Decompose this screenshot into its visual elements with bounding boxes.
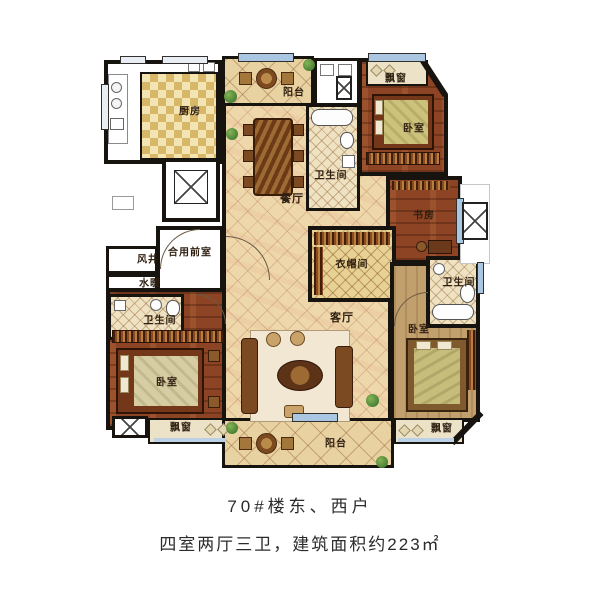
pillow (120, 377, 129, 393)
duct-shaft-icon (336, 76, 352, 100)
kitchen-sink (110, 118, 124, 130)
armchair (290, 331, 305, 346)
plant (226, 422, 238, 434)
bedroom-br-label: 卧室 (408, 325, 430, 336)
bay-window-glass (154, 438, 226, 442)
window (120, 56, 146, 64)
dining-table (253, 118, 293, 196)
bath-right-label: 卫生间 (443, 278, 476, 289)
bedroom-bl-label: 卧室 (156, 378, 178, 389)
bath-mid-label: 卫生间 (315, 171, 348, 182)
living-label: 客厅 (330, 312, 354, 324)
balcony-table (256, 68, 277, 89)
study-label: 书房 (413, 211, 435, 222)
washer-box (338, 64, 352, 76)
closet-hanging-rail (314, 232, 390, 245)
dining-chair (293, 176, 304, 188)
balcony-chair (281, 437, 294, 450)
baywin-bl-label: 飘窗 (170, 423, 192, 434)
balcony-top-label: 阳台 (283, 88, 305, 99)
wardrobe (366, 152, 440, 165)
caption-area-line: 四室两厅三卫，建筑面积约223㎡ (0, 530, 600, 555)
plant (366, 394, 379, 407)
sink (114, 300, 126, 311)
kitchen-label: 厨房 (179, 107, 201, 118)
window (477, 262, 484, 294)
nightstand (208, 396, 220, 408)
toilet (340, 132, 354, 149)
bay-window-glass (398, 438, 454, 442)
balcony-chair (239, 72, 252, 85)
balcony-table (256, 433, 277, 454)
pillow (437, 341, 452, 350)
bedroom-tr-label: 卧室 (403, 124, 425, 135)
elevator-icon (174, 170, 208, 204)
plumbing-label: 水暖 (139, 279, 161, 290)
nightstand (208, 350, 220, 362)
sink (150, 299, 162, 311)
pillow (416, 341, 431, 350)
plant (226, 128, 238, 140)
washer-box (320, 64, 334, 76)
bed-blanket (414, 348, 460, 404)
bathtub (432, 304, 474, 320)
wind-shaft-label: 风井 (137, 255, 159, 266)
window (238, 53, 294, 62)
front-room-label: 合用前室 (168, 248, 212, 259)
caption-unit-line: 70#楼东、西户 (0, 492, 600, 517)
window (368, 53, 426, 62)
sofa (241, 338, 258, 414)
plant (376, 456, 388, 468)
bathtub (311, 109, 353, 126)
baywin-br-label: 飘窗 (431, 424, 453, 435)
window (162, 56, 208, 64)
ac-unit-icon (462, 202, 488, 240)
washer-box (342, 155, 355, 168)
wall-niche (112, 196, 134, 210)
dining-chair (293, 124, 304, 136)
balcony-chair (281, 72, 294, 85)
pillow (375, 120, 383, 135)
stove-burner (111, 98, 122, 109)
dining-chair (293, 150, 304, 162)
pillow (375, 100, 383, 115)
balcony-bottom-label: 阳台 (325, 439, 347, 450)
armchair (266, 332, 281, 347)
baywin-tr-label: 飘窗 (385, 74, 407, 85)
wardrobe (112, 330, 224, 343)
plant (303, 59, 315, 71)
ac-unit-icon (112, 416, 148, 438)
balcony-chair (239, 437, 252, 450)
closet-label: 衣帽间 (336, 260, 369, 271)
floor-plan-page: 厨房 阳台 餐厅 卫生间 飘窗 卧室 书房 卫生间 卧室 飘窗 衣帽间 客厅 合… (0, 0, 600, 600)
desk-chair (416, 241, 427, 252)
pillow (120, 355, 129, 371)
sofa (335, 346, 353, 408)
stove-burner (111, 82, 122, 93)
dining-label: 餐厅 (280, 193, 304, 205)
bookshelf (392, 181, 450, 190)
dresser (467, 330, 476, 390)
sink (433, 263, 445, 275)
coffee-table (277, 360, 323, 391)
bath-left-label: 卫生间 (144, 316, 177, 327)
balcony-door-window (292, 413, 338, 422)
bed-blanket (384, 100, 428, 144)
plant (224, 90, 237, 103)
desk (428, 240, 452, 254)
window (101, 84, 109, 130)
closet-hanging-rail (314, 247, 323, 295)
toilet (166, 300, 180, 317)
